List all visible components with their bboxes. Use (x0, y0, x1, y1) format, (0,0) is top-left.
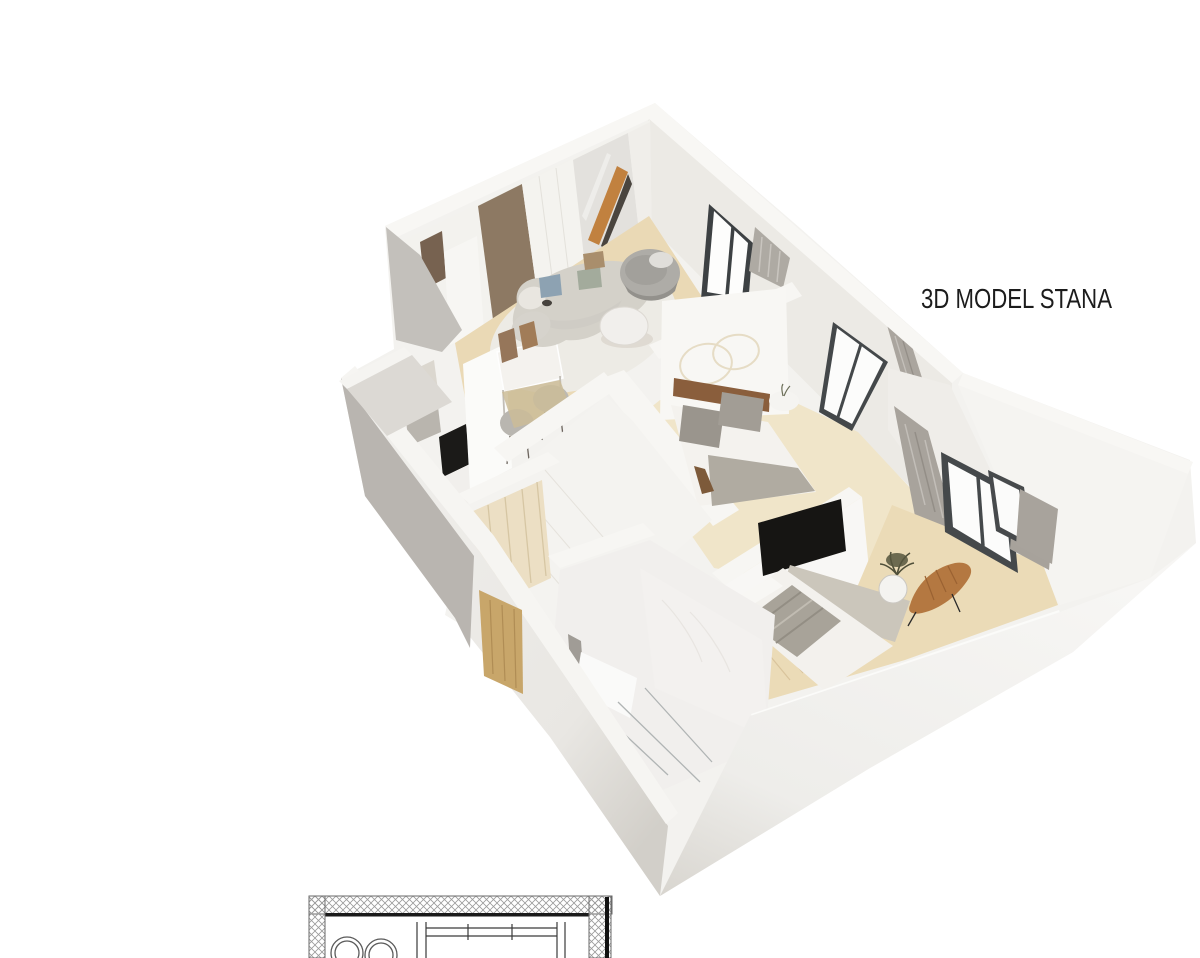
svg-text:3D MODEL STANA: 3D MODEL STANA (921, 283, 1112, 314)
